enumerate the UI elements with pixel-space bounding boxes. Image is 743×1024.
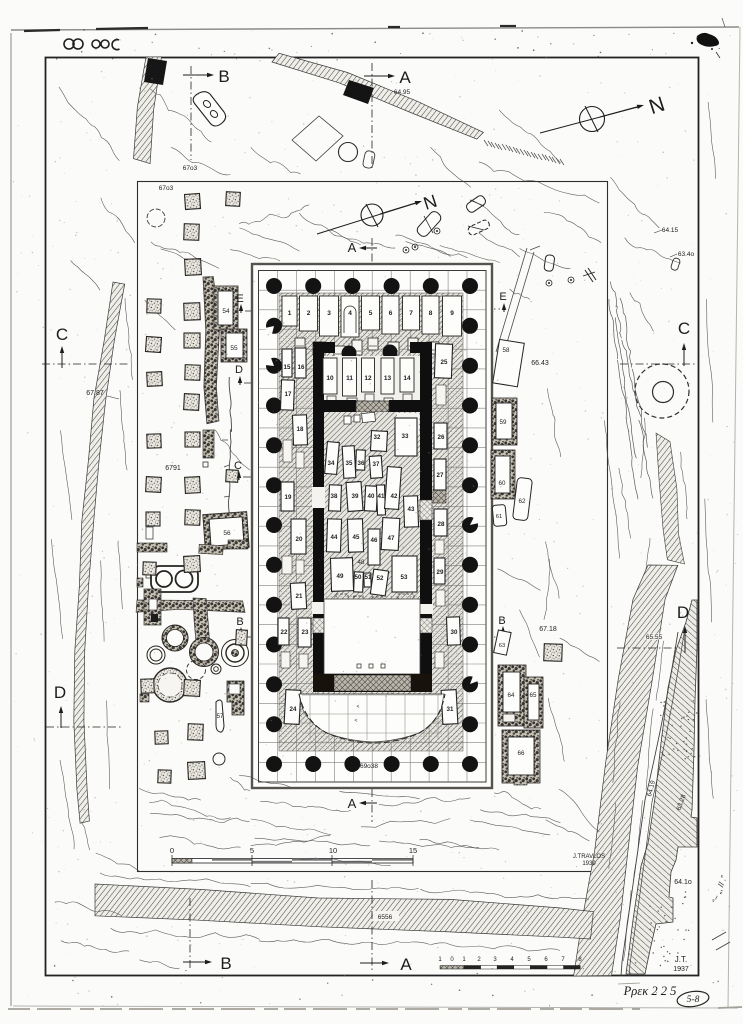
svg-text:14: 14: [403, 375, 411, 382]
svg-text:63.4o: 63.4o: [678, 251, 695, 258]
svg-text:64: 64: [508, 692, 515, 699]
svg-text:40: 40: [368, 493, 375, 500]
svg-text:55: 55: [230, 345, 238, 352]
svg-text:J.T.: J.T.: [675, 955, 687, 964]
svg-text:15: 15: [409, 846, 417, 855]
svg-text:19: 19: [285, 494, 292, 501]
svg-text:B: B: [218, 67, 229, 86]
svg-text:C: C: [56, 325, 68, 344]
svg-text:28: 28: [438, 521, 445, 528]
svg-text:64.1o: 64.1o: [674, 879, 692, 886]
svg-text:1: 1: [288, 310, 292, 317]
svg-text:8: 8: [429, 310, 433, 317]
svg-text:66: 66: [518, 750, 525, 757]
svg-text:15: 15: [284, 364, 291, 371]
svg-text:62: 62: [519, 498, 526, 505]
svg-text:57: 57: [217, 714, 224, 720]
svg-text:10: 10: [326, 375, 334, 382]
svg-text:65: 65: [530, 692, 537, 699]
svg-text:D: D: [235, 364, 243, 376]
svg-text:B: B: [498, 615, 505, 627]
svg-text:34: 34: [328, 460, 335, 467]
svg-text:38: 38: [331, 493, 338, 500]
svg-text:9: 9: [450, 310, 454, 317]
svg-text:A: A: [348, 796, 357, 811]
svg-text:64.95: 64.95: [394, 89, 411, 96]
svg-text:48: 48: [358, 559, 365, 566]
svg-text:60: 60: [499, 480, 506, 487]
svg-text:64.15: 64.15: [662, 227, 679, 234]
svg-text:31: 31: [447, 706, 454, 713]
svg-text:61: 61: [496, 514, 502, 520]
svg-text:46: 46: [371, 537, 378, 544]
svg-text:10: 10: [329, 846, 337, 855]
svg-text:6556: 6556: [378, 914, 393, 921]
svg-text:43: 43: [408, 506, 415, 513]
svg-text:51: 51: [365, 574, 372, 581]
svg-text:18: 18: [297, 426, 304, 433]
svg-text:21: 21: [296, 593, 303, 600]
svg-text:5-8: 5-8: [687, 995, 700, 1005]
svg-text:52: 52: [377, 575, 384, 582]
svg-text:D: D: [677, 603, 689, 622]
svg-text:37: 37: [373, 461, 380, 468]
svg-text:63: 63: [499, 643, 505, 649]
svg-text:29: 29: [437, 569, 444, 576]
svg-text:59: 59: [500, 419, 507, 426]
svg-text:C: C: [678, 319, 690, 338]
svg-text:50: 50: [355, 574, 362, 581]
svg-text:0: 0: [170, 846, 174, 855]
svg-text:24: 24: [290, 706, 297, 713]
svg-text:67o3: 67o3: [159, 185, 174, 192]
svg-text:54: 54: [222, 308, 230, 315]
svg-text:56: 56: [223, 530, 231, 537]
svg-text:13: 13: [384, 375, 392, 382]
svg-text:49: 49: [337, 573, 344, 580]
svg-text:39: 39: [352, 493, 359, 500]
svg-text:47: 47: [388, 535, 395, 542]
svg-text:A: A: [399, 68, 411, 87]
svg-text:Pρεκ 2 2 5: Pρεκ 2 2 5: [623, 984, 677, 998]
svg-text:30: 30: [451, 629, 458, 636]
svg-text:22: 22: [281, 629, 288, 636]
svg-text:16: 16: [298, 364, 305, 371]
svg-text:35: 35: [346, 460, 353, 467]
svg-text:7: 7: [409, 310, 413, 317]
svg-text:27: 27: [437, 472, 444, 479]
svg-text:53: 53: [401, 574, 408, 581]
svg-text:J.TRAVLOS: J.TRAVLOS: [573, 854, 605, 860]
svg-text:2: 2: [307, 310, 311, 317]
svg-text:D: D: [54, 683, 66, 702]
svg-text:58: 58: [503, 347, 510, 354]
svg-text:41: 41: [378, 493, 385, 500]
svg-text:33: 33: [402, 433, 409, 440]
svg-text:25: 25: [441, 359, 448, 366]
svg-text:6: 6: [389, 310, 393, 317]
svg-text:5: 5: [369, 310, 373, 317]
svg-text:<: <: [355, 718, 358, 724]
svg-text:44: 44: [331, 534, 338, 541]
svg-text:67.18: 67.18: [539, 626, 557, 633]
svg-text:17: 17: [285, 391, 292, 398]
svg-text:45: 45: [353, 534, 360, 541]
svg-text:A: A: [348, 240, 357, 255]
svg-text:67.87: 67.87: [86, 390, 104, 397]
svg-text:66.43: 66.43: [531, 360, 549, 367]
svg-text:5: 5: [250, 846, 254, 855]
svg-text:20: 20: [296, 536, 303, 543]
svg-text:B: B: [236, 616, 243, 628]
svg-text:1939: 1939: [582, 861, 596, 867]
svg-text:36: 36: [358, 460, 365, 467]
svg-text:E: E: [499, 291, 506, 303]
svg-text:69o38: 69o38: [360, 763, 378, 770]
svg-text:65.55: 65.55: [646, 634, 663, 641]
svg-text:42: 42: [391, 493, 398, 500]
svg-text:1937: 1937: [673, 966, 689, 973]
svg-text:32: 32: [374, 434, 381, 441]
svg-text:<: <: [357, 704, 360, 710]
svg-text:12: 12: [364, 375, 372, 382]
svg-text:67o3: 67o3: [183, 165, 198, 172]
svg-text:C: C: [234, 460, 242, 472]
svg-text:B: B: [220, 954, 231, 973]
svg-text:26: 26: [438, 434, 445, 441]
svg-text:23: 23: [302, 629, 309, 636]
svg-text:A: A: [400, 955, 412, 974]
svg-text:6791: 6791: [165, 465, 181, 472]
svg-text:4: 4: [348, 310, 352, 317]
svg-text:3: 3: [327, 310, 331, 317]
